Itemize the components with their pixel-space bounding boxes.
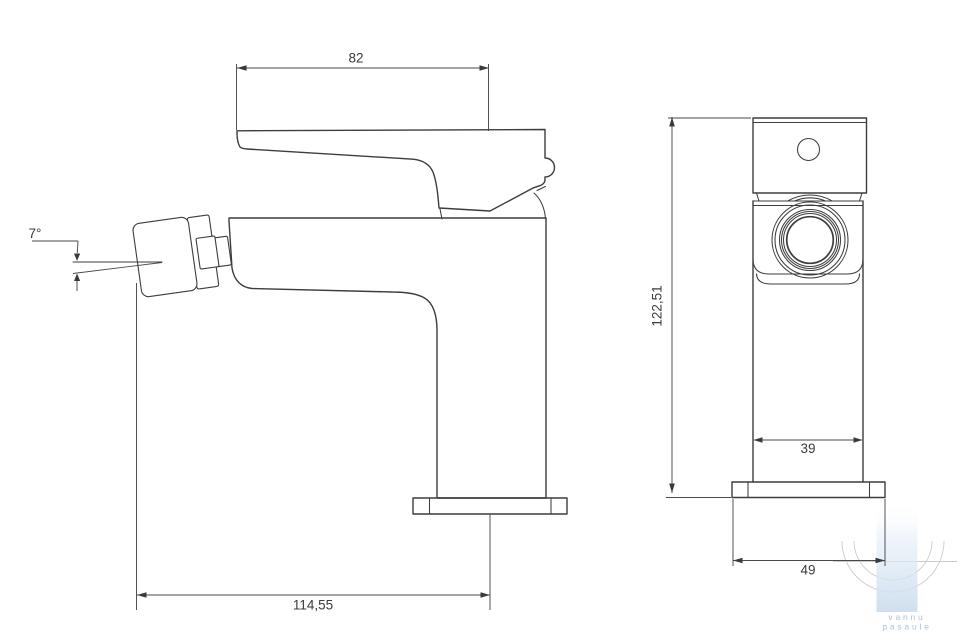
side-swivel-arc: [534, 193, 546, 219]
dim-overall-height: 122,51: [650, 117, 752, 498]
dimension-annotations: 82 7° 114,55 122,51: [29, 51, 885, 613]
arrowhead: [854, 437, 863, 442]
side-flange-rect: [413, 498, 567, 514]
side-body-outline: [229, 218, 546, 498]
front-neck-sides: [757, 193, 863, 201]
arrowhead: [733, 558, 743, 564]
aerator-circle-2: [775, 205, 845, 275]
dim-base-width: 49: [733, 499, 885, 578]
technical-drawing-page: vannu pasaule: [0, 0, 965, 633]
aerator-body: [132, 216, 198, 297]
side-lever-outline: [237, 130, 555, 212]
dim-label-12251: 122,51: [650, 285, 665, 326]
watermark-text-line1: vannu: [888, 612, 925, 622]
front-aerator-circles: [772, 202, 848, 278]
side-base-flange: [413, 498, 567, 514]
front-handle-hole: [798, 139, 820, 161]
technical-drawing-canvas: vannu pasaule: [0, 0, 965, 633]
dim-label-49: 49: [800, 563, 815, 578]
front-housing-seam-2: [757, 274, 860, 284]
aerator-circle-3: [780, 210, 841, 271]
arrowhead: [137, 592, 147, 598]
arrowhead: [237, 65, 247, 71]
front-handle-block: [753, 118, 867, 193]
aerator-circle-core: [787, 217, 834, 264]
dim-label-82: 82: [348, 51, 363, 66]
front-flange-rect: [732, 482, 885, 498]
dim-body-width: 39: [754, 437, 863, 456]
aerator-circle-4: [782, 212, 839, 269]
aerator-square-nut: [196, 236, 219, 269]
dim-label-7deg: 7°: [29, 226, 42, 241]
side-aerator-assembly: [73, 215, 231, 298]
aerator-circle-5: [784, 214, 837, 267]
arrowhead: [74, 274, 80, 282]
watermark-text-line2: pasaule: [882, 622, 931, 632]
arrowhead: [480, 65, 490, 71]
dim-label-11455: 114,55: [293, 598, 333, 613]
front-base-flange: [732, 482, 885, 498]
side-view: [73, 130, 567, 515]
side-lever-rear-lip: [537, 187, 546, 191]
dim-label-39: 39: [800, 441, 815, 456]
watermark-blue-bar: [877, 500, 918, 612]
arrowhead: [74, 254, 80, 262]
watermark-logo: vannu pasaule: [833, 500, 957, 632]
dim-handle-length: 82: [237, 51, 490, 132]
arrowhead: [754, 437, 763, 442]
arrowhead: [669, 484, 675, 494]
arrowhead: [481, 592, 491, 598]
